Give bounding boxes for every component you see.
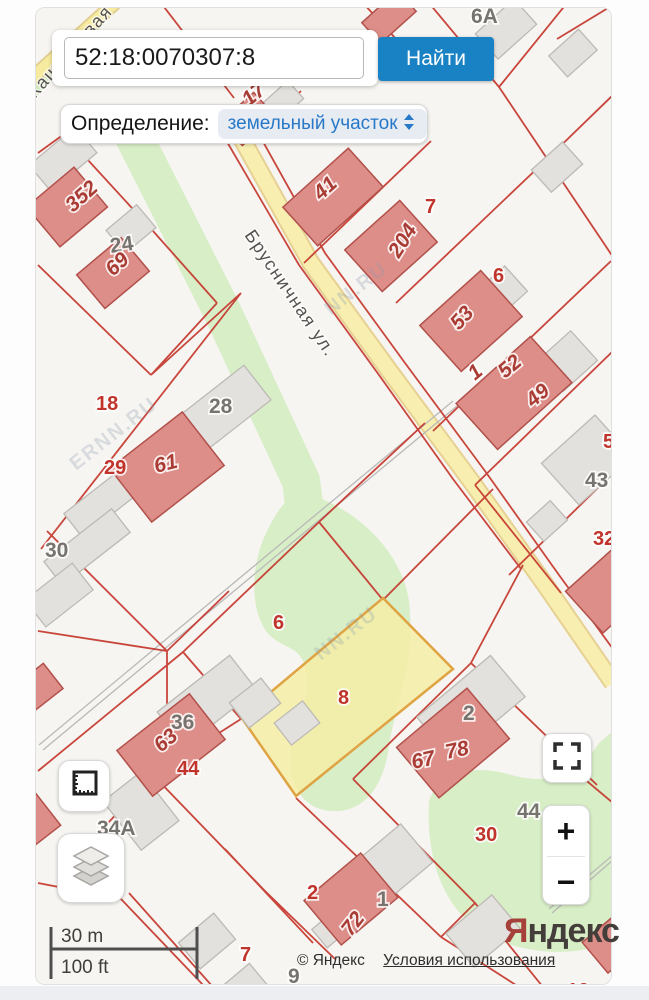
svg-text:6: 6 xyxy=(273,612,284,634)
svg-text:18: 18 xyxy=(96,393,118,415)
terms-of-use-link[interactable]: Условия использования xyxy=(383,952,555,969)
zoom-out-button[interactable]: − xyxy=(543,857,589,907)
svg-text:2: 2 xyxy=(307,882,318,904)
zoom-controls: + − xyxy=(542,805,590,905)
svg-text:30: 30 xyxy=(475,824,497,846)
zoom-in-button[interactable]: + xyxy=(543,806,589,856)
ruler-icon xyxy=(67,767,101,806)
svg-text:28: 28 xyxy=(209,395,233,418)
fullscreen-button[interactable] xyxy=(542,733,592,783)
svg-text:36: 36 xyxy=(171,711,194,734)
svg-text:7: 7 xyxy=(425,196,436,218)
chevron-up-down-icon xyxy=(401,112,417,137)
svg-text:43: 43 xyxy=(585,469,608,492)
svg-text:6A: 6A xyxy=(471,8,498,28)
cadastral-number-input[interactable] xyxy=(64,37,364,79)
page-bottom-strip xyxy=(0,986,649,1000)
definition-select[interactable]: земельный участок xyxy=(218,109,427,139)
svg-text:8: 8 xyxy=(338,687,349,709)
svg-text:44: 44 xyxy=(517,800,541,823)
search-card xyxy=(52,30,378,86)
svg-text:29: 29 xyxy=(104,457,126,479)
svg-text:2: 2 xyxy=(463,702,475,725)
svg-text:44: 44 xyxy=(177,758,200,780)
find-button[interactable]: Найти xyxy=(378,37,494,81)
svg-text:5: 5 xyxy=(603,431,612,453)
svg-text:30: 30 xyxy=(45,539,68,562)
copyright-text: © Яндекс xyxy=(297,952,365,969)
definition-bar: Определение: земельный участок xyxy=(60,104,428,144)
scale-metric: 30 m xyxy=(61,926,103,947)
svg-text:6: 6 xyxy=(493,265,504,287)
svg-text:7: 7 xyxy=(240,944,251,966)
layers-button[interactable] xyxy=(57,833,125,903)
scale-imperial: 100 ft xyxy=(61,957,109,978)
svg-text:12: 12 xyxy=(567,980,589,985)
layers-icon xyxy=(66,843,116,894)
definition-value: земельный участок xyxy=(228,113,401,135)
map-attribution: © Яндекс Условия использования xyxy=(297,952,555,970)
svg-text:1: 1 xyxy=(377,888,389,911)
svg-text:32: 32 xyxy=(593,528,612,550)
fullscreen-icon xyxy=(552,741,582,776)
yandex-logo: Яндекс xyxy=(504,912,619,951)
definition-label: Определение: xyxy=(71,112,210,136)
measure-button[interactable] xyxy=(58,760,110,812)
